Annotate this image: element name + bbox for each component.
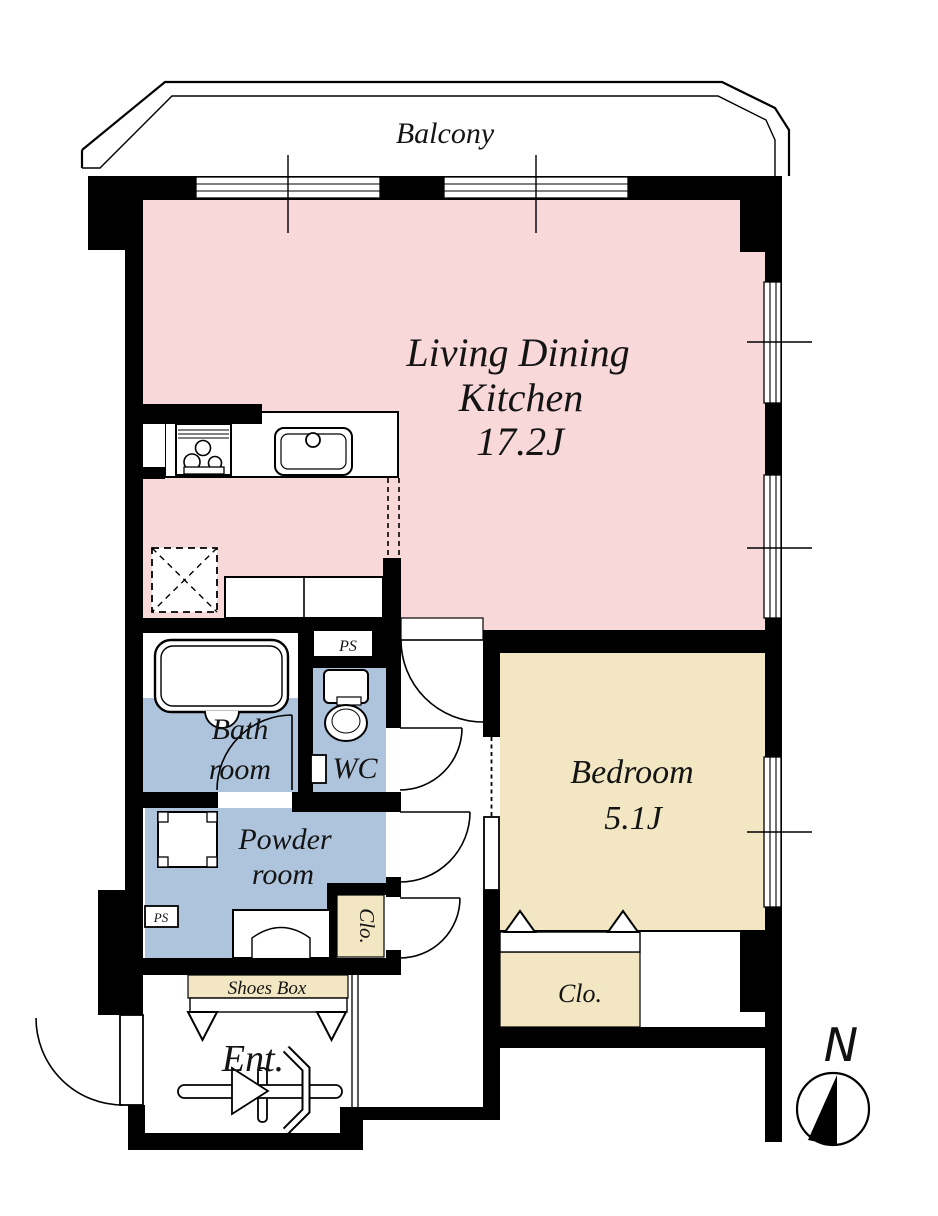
pipe-space-bottom-label: PS xyxy=(153,910,169,925)
washing-machine-pan xyxy=(158,812,217,867)
stove-drawer xyxy=(184,467,224,474)
shoes-box-label: Shoes Box xyxy=(228,978,307,999)
bedroom-floor xyxy=(500,653,765,932)
bedroom-closet-label: Clo. xyxy=(558,979,602,1008)
wall-left-block xyxy=(98,890,143,1015)
pipe-space-top-label: PS xyxy=(338,638,357,655)
wall-top-left-corner xyxy=(88,176,143,250)
wall-hall-left-a xyxy=(386,633,401,728)
wall-ldk-bedroom xyxy=(483,630,782,653)
toilet-paper-holder xyxy=(311,755,326,783)
washer-pan-corner xyxy=(207,857,217,867)
vanity-bowl xyxy=(252,928,310,959)
entrance-label: Ent. xyxy=(221,1038,284,1080)
hall-closet-door xyxy=(400,898,460,958)
wall-left-mid xyxy=(125,633,143,890)
ldk-hall-door-opening xyxy=(401,618,483,640)
hall-closet-label: Clo. xyxy=(355,908,379,944)
genkan-step-marker xyxy=(317,1012,346,1040)
bathroom-label-line1: Bath xyxy=(212,713,269,746)
kitchen-wall-notch xyxy=(143,424,165,467)
bathroom-label-line2: room xyxy=(209,753,271,786)
wall-left-upper xyxy=(125,248,143,633)
powder-label-line2: room xyxy=(252,858,314,891)
toilet-lid-handle xyxy=(337,697,361,705)
wall-stub-stove xyxy=(143,404,262,424)
wc-door xyxy=(400,728,462,790)
wall-powder-closet-h xyxy=(327,883,401,895)
compass: N xyxy=(797,1018,869,1146)
wall-powder-bottom xyxy=(98,958,401,975)
wall-entrance-bottom xyxy=(128,1133,363,1150)
compass-north-label: N xyxy=(824,1018,858,1072)
floor-plan: Balcony Living Dining Kitchen 17.2J Bedr… xyxy=(0,0,938,1216)
wall-top xyxy=(88,176,782,200)
wall-closet-bottom xyxy=(483,1027,782,1048)
shoes-box-counter xyxy=(190,998,347,1012)
washer-pan-corner xyxy=(158,857,168,867)
entrance-hall-boundary xyxy=(352,975,358,1107)
washer-pan-corner xyxy=(158,812,168,822)
toilet-bowl xyxy=(325,705,367,741)
floor-plan-canvas: Balcony Living Dining Kitchen 17.2J Bedr… xyxy=(0,0,938,1216)
bedroom-closet-track xyxy=(500,932,640,952)
bedroom-sliding-door-panel xyxy=(484,817,499,890)
powder-room-door xyxy=(400,812,470,882)
entrance-door-swing xyxy=(36,1018,123,1105)
wall-stub-small xyxy=(143,467,165,479)
wc-label: WC xyxy=(333,752,379,785)
window-frame xyxy=(764,475,781,618)
balcony-label: Balcony xyxy=(396,117,495,150)
wall-bath-bottom-right xyxy=(292,792,401,812)
wall-hall-right-b xyxy=(483,890,500,1120)
wall-top-right-corner xyxy=(740,176,782,252)
stove-burner xyxy=(196,441,211,456)
ldk-label-line2: Kitchen xyxy=(458,375,583,420)
bedroom-area-label: 5.1J xyxy=(604,800,664,837)
wall-hall-bottom xyxy=(357,1107,500,1120)
refrigerator-space xyxy=(152,548,217,612)
wall-bath-bottom-left xyxy=(143,792,218,808)
wall-hall-right-a xyxy=(483,652,500,737)
genkan-step-marker xyxy=(188,1012,217,1040)
sink-faucet xyxy=(306,433,320,447)
ldk-area-label: 17.2J xyxy=(476,419,566,464)
wall-pillar-bottom-right xyxy=(740,932,782,1012)
ldk-label-line1: Living Dining xyxy=(405,330,629,375)
compass-needle-icon xyxy=(808,1075,837,1146)
powder-label-line1: Powder xyxy=(237,823,332,856)
washer-pan-corner xyxy=(207,812,217,822)
vanity-sink xyxy=(233,910,330,958)
bedroom-label: Bedroom xyxy=(570,754,693,791)
ldk-hall-door xyxy=(401,640,483,722)
bathtub-outer xyxy=(155,640,288,712)
kitchen-sink xyxy=(275,428,352,475)
entrance-door-leaf xyxy=(120,1015,143,1105)
wall-ps-bottom xyxy=(313,657,386,668)
kitchen-stove xyxy=(176,424,231,475)
